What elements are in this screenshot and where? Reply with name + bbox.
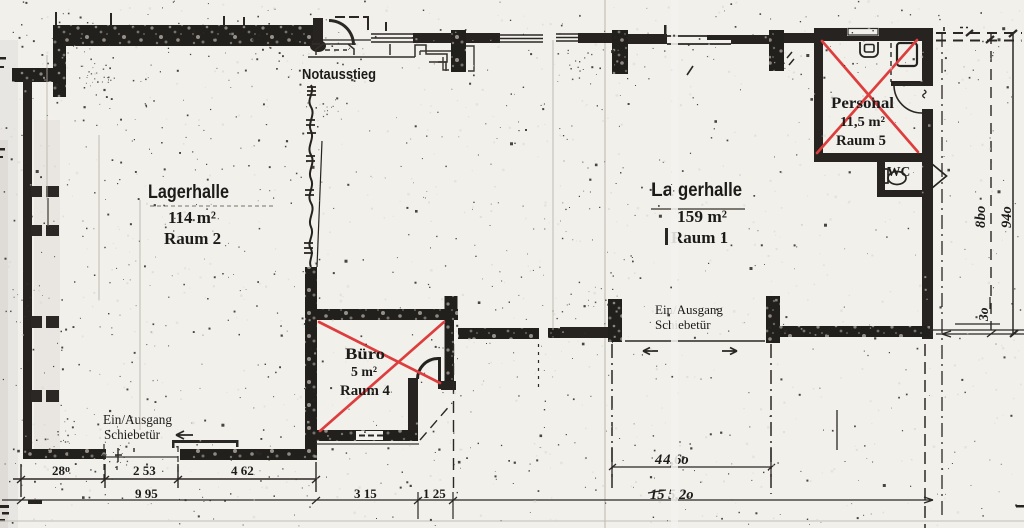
svg-text:Personal: Personal: [831, 95, 895, 112]
svg-text:Raum 1: Raum 1: [671, 228, 728, 247]
svg-text:159 m²: 159 m²: [677, 207, 727, 226]
svg-text:Schiebetür: Schiebetür: [104, 428, 160, 443]
svg-text:Schiebetür: Schiebetür: [655, 317, 711, 332]
svg-text:Notausstieg: Notausstieg: [302, 66, 376, 83]
svg-text:gerhalle: gerhalle: [678, 180, 742, 201]
svg-text:4 62: 4 62: [231, 463, 254, 478]
svg-text:Ein/Ausgang: Ein/Ausgang: [103, 413, 172, 428]
svg-text:Büro: Büro: [345, 346, 385, 363]
svg-text:9 95: 9 95: [135, 486, 158, 501]
svg-text:2 53: 2 53: [133, 463, 156, 478]
svg-text:114 m²: 114 m²: [168, 208, 216, 227]
svg-text:8bo: 8bo: [973, 206, 989, 228]
svg-text:11,5 m²: 11,5 m²: [840, 115, 885, 130]
svg-text:Ein/Ausgang: Ein/Ausgang: [655, 302, 723, 317]
svg-text:3 15: 3 15: [354, 486, 377, 501]
svg-text:La: La: [651, 180, 674, 201]
svg-text:94o: 94o: [999, 206, 1015, 228]
svg-text:Raum 4: Raum 4: [340, 383, 390, 399]
svg-text:1 25: 1 25: [423, 486, 446, 501]
svg-text:Lagerhalle: Lagerhalle: [148, 182, 229, 203]
svg-text:3o: 3o: [976, 307, 991, 322]
svg-text:5 m²: 5 m²: [351, 365, 377, 380]
svg-text:Raum 2: Raum 2: [164, 229, 221, 248]
svg-text:Raum 5: Raum 5: [836, 133, 886, 149]
